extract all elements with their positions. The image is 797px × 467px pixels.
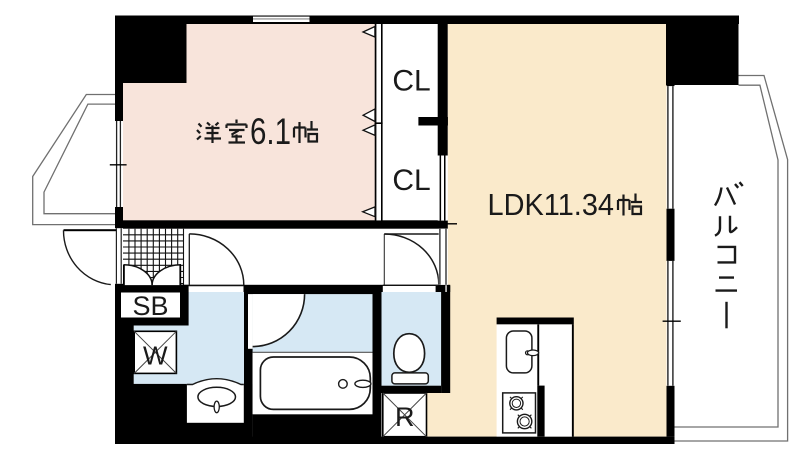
svg-text:CL: CL (392, 65, 430, 98)
svg-text:LDK11.34: LDK11.34 (488, 187, 615, 222)
svg-text:W: W (143, 340, 168, 370)
svg-text:R: R (395, 402, 415, 432)
svg-text:6.1: 6.1 (250, 111, 291, 152)
svg-text:SB: SB (132, 291, 168, 321)
svg-text:CL: CL (392, 164, 430, 197)
